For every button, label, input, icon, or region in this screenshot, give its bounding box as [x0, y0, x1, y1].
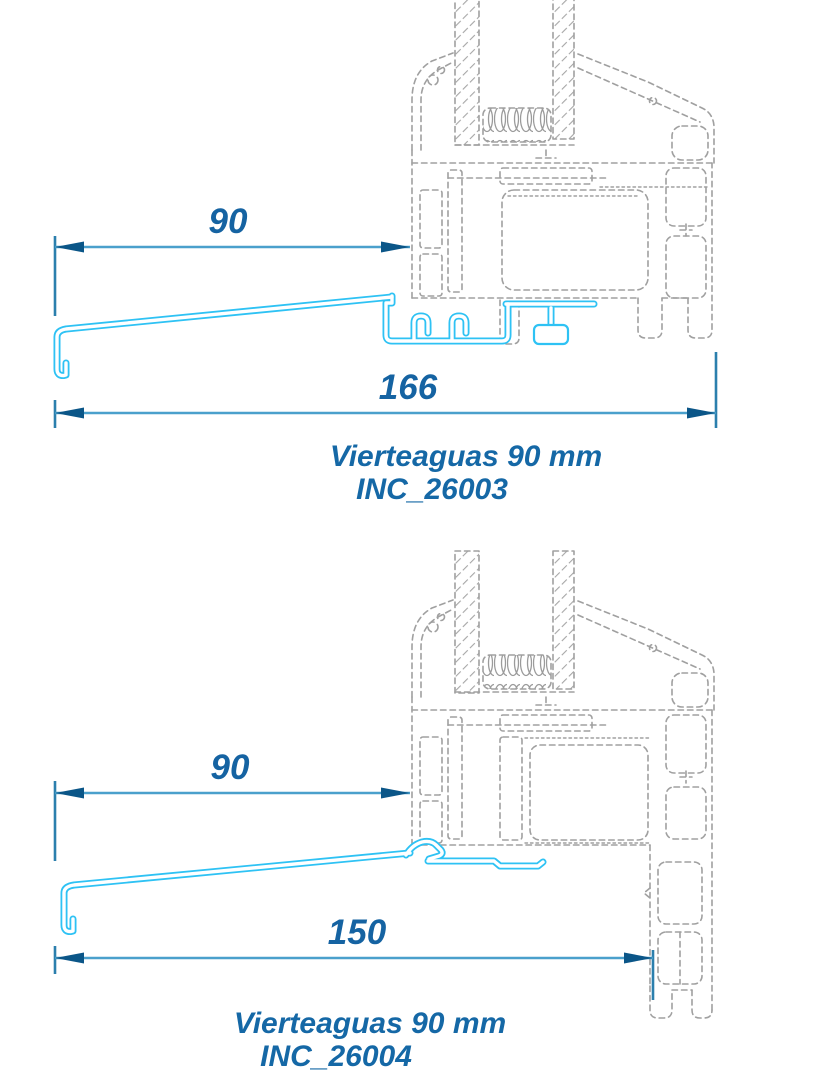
dimension-value: 90 [211, 748, 250, 787]
glazing-bar-left [455, 551, 479, 693]
glazing-bar-left [455, 0, 479, 145]
arrow-left-icon [55, 788, 84, 799]
t-foot [534, 325, 568, 344]
dimension-value: 166 [379, 368, 438, 407]
dimension-value: 90 [209, 202, 248, 241]
top-diagram: 90 166 Vierteaguas 90 mm INC_26003 [55, 0, 716, 506]
top-dimension-166: 166 [55, 352, 716, 428]
top-frame-cross-section [412, 0, 714, 344]
arrow-left-icon [55, 953, 84, 964]
drawing-canvas: 90 166 Vierteaguas 90 mm INC_26003 [0, 0, 814, 1086]
glazing-bar-right [553, 551, 574, 689]
gasket-coil [483, 655, 551, 689]
bottom-dimension-150: 150 [55, 913, 653, 1000]
arrow-left-icon [55, 242, 84, 253]
diagram-title: Vierteaguas 90 mm [234, 1007, 506, 1040]
dimension-value: 150 [328, 913, 387, 952]
top-sill-profile [57, 296, 594, 376]
product-code: INC_26004 [260, 1040, 412, 1073]
arrow-right-icon [687, 408, 716, 419]
bottom-sill-profile [64, 841, 543, 931]
diagram-title: Vierteaguas 90 mm [330, 440, 602, 473]
bottom-dimension-90: 90 [55, 748, 410, 861]
technical-drawing-page: 90 166 Vierteaguas 90 mm INC_26003 [0, 0, 814, 1086]
gasket-coil [483, 108, 551, 142]
arrow-right-icon [624, 953, 653, 964]
product-code: INC_26003 [356, 473, 508, 506]
bottom-frame-cross-section [412, 551, 714, 1018]
bottom-diagram: 90 150 Vierteaguas 90 mm INC_26004 [55, 551, 714, 1073]
arrow-right-icon [381, 242, 410, 253]
arrow-right-icon [381, 788, 410, 799]
arrow-left-icon [55, 408, 84, 419]
glazing-bar-right [553, 0, 574, 139]
